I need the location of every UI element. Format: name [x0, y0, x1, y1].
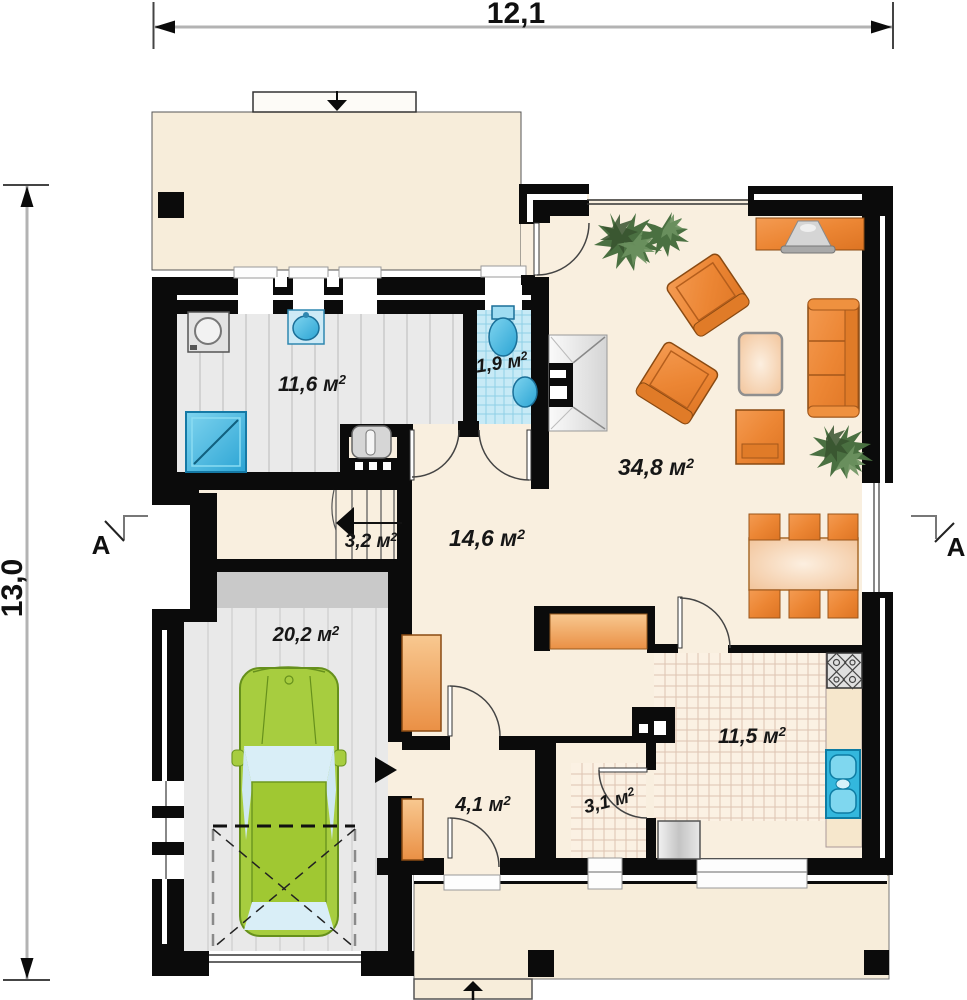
svg-text:13,0: 13,0 [0, 559, 29, 617]
svg-text:11,5 м2: 11,5 м2 [718, 724, 787, 748]
svg-text:11,6 м2: 11,6 м2 [278, 372, 347, 396]
svg-text:A: A [92, 530, 111, 560]
svg-text:12,1: 12,1 [487, 0, 545, 30]
svg-text:A: A [947, 532, 966, 562]
svg-text:4,1 м2: 4,1 м2 [454, 793, 511, 816]
svg-text:14,6 м2: 14,6 м2 [449, 525, 525, 551]
svg-text:34,8 м2: 34,8 м2 [618, 454, 694, 480]
svg-text:3,2 м2: 3,2 м2 [345, 530, 398, 552]
svg-text:20,2 м2: 20,2 м2 [272, 623, 340, 646]
